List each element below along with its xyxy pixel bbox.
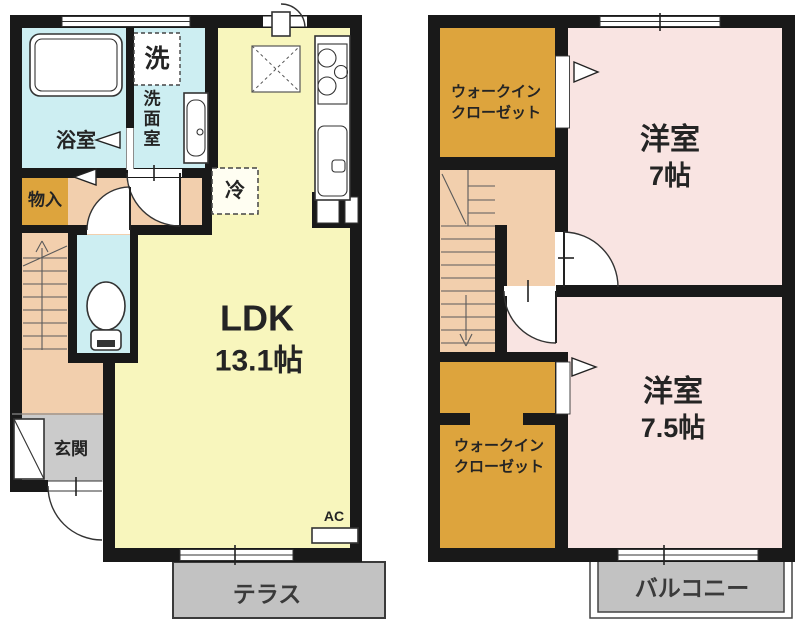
label-washroom-1: 洗 [144,89,161,109]
label-bathroom: 浴室 [56,128,96,152]
label-fridge: 冷 [225,178,245,202]
kitchen-side-window [317,197,339,223]
first-floor-plan: 浴室 洗 洗 面 室 物入 冷 LDK 13.1帖 玄関 テラス AC [10,4,385,618]
label-terrace: テラス [233,581,302,607]
label-washroom-3: 室 [144,129,161,149]
room-wic-bottom [440,362,560,548]
bathroom-door-gap [127,128,134,170]
toilet-fixture [87,282,125,330]
backdoor-leaf [272,12,290,36]
label-ldk: LDK [220,298,294,339]
label-entrance: 玄関 [54,439,88,459]
label-bedroom75-size: 7.5帖 [641,413,706,443]
bedroom75-door-gap [504,286,556,296]
vanity-sink [184,93,208,163]
label-laundry: 洗 [144,45,169,73]
bathtub [30,34,122,96]
label-wic-bottom-2: クローゼット [454,458,544,476]
ac-unit-box [312,528,358,543]
wic-bottom-door-leaf [556,362,570,414]
washroom-door-gap [128,169,182,177]
label-wic-bottom-1: ウォークイン [454,438,544,455]
label-storage: 物入 [28,190,62,210]
second-floor-plan: ウォークイン クローゼット 洋室 7帖 洋室 7.5帖 ウォークイン クローゼッ… [428,13,795,618]
label-wic-top-2: クローゼット [451,104,541,122]
label-bedroom7-size: 7帖 [649,161,691,191]
toilet-door-gap [87,226,130,234]
stairs-area-1f [22,233,68,352]
label-ldk-size: 13.1帖 [215,345,303,378]
floorplan-svg: 浴室 洗 洗 面 室 物入 冷 LDK 13.1帖 玄関 テラス AC [0,0,800,628]
label-wic-top-1: ウォークイン [451,84,541,101]
label-washroom-2: 面 [144,110,161,129]
floorplan-canvas: 浴室 洗 洗 面 室 物入 冷 LDK 13.1帖 玄関 テラス AC [0,0,800,628]
wic-top-door-leaf [556,56,570,128]
kitchen-counter [315,36,350,200]
label-bedroom75: 洋室 [643,375,703,409]
label-ac: AC [324,508,344,524]
entrance-door-gap [48,481,102,491]
label-bedroom7: 洋室 [640,123,700,157]
label-balcony: バルコニー [635,575,750,601]
